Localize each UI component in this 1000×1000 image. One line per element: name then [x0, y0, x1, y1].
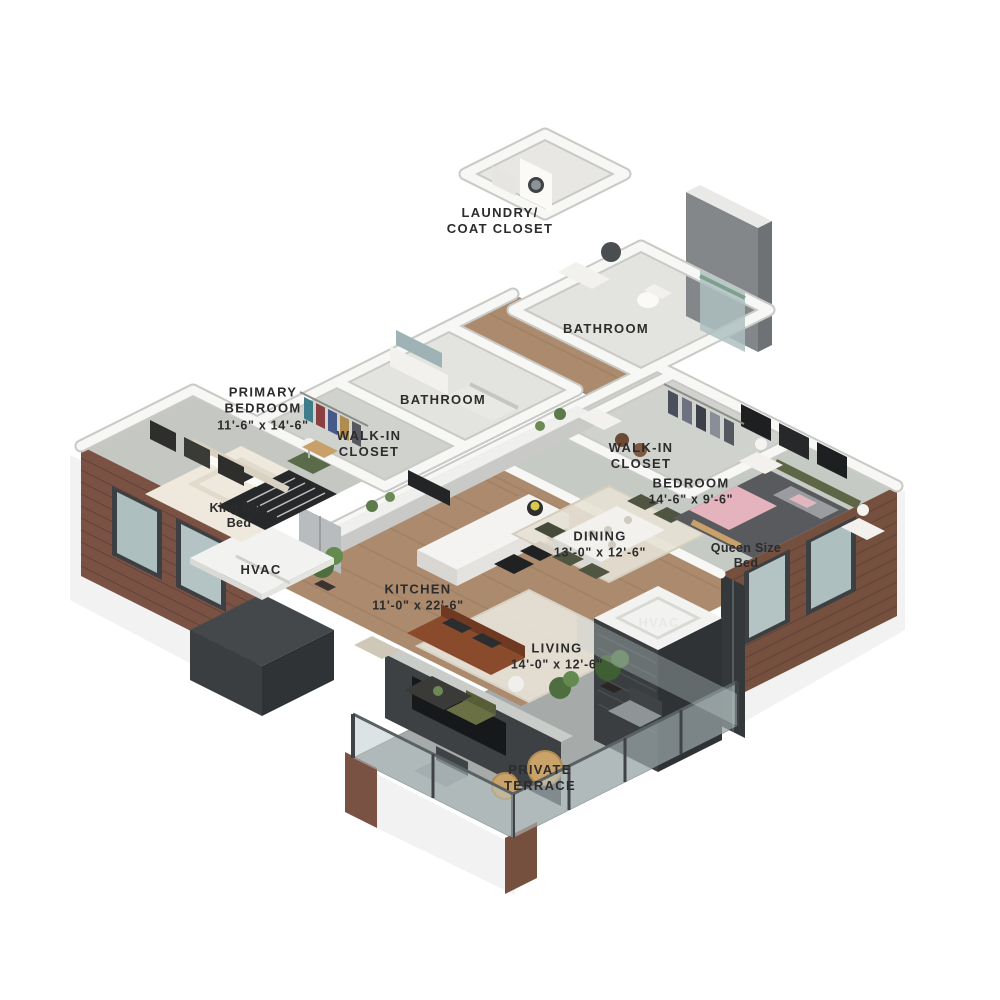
label-terrace: PRIVATE TERRACE [498, 762, 582, 795]
floorplan-illustration [0, 0, 1000, 1000]
label-queen-bed: Queen Size Bed [704, 541, 788, 571]
label-kitchen: KITCHEN 11'-0" x 22'-6" [353, 582, 483, 615]
label-bathroom-main: BATHROOM [378, 392, 508, 408]
label-living: LIVING 14'-0" x 12'-6" [492, 641, 622, 674]
label-laundry: LAUNDRY/ COAT CLOSET [444, 205, 556, 238]
label-bedroom: BEDROOM 14'-6" x 9'-6" [626, 476, 756, 509]
label-primary-bedroom: PRIMARY BEDROOM 11'-6" x 14'-6" [216, 384, 311, 433]
label-hvac-right: HVAC [622, 615, 696, 631]
label-hvac-left: HVAC [224, 562, 298, 578]
label-dining: DINING 13'-0" x 12'-6" [535, 529, 665, 562]
floorplan-page: LAUNDRY/ COAT CLOSET BATHROOM BATHROOM P… [0, 0, 1000, 1000]
label-walkin-bedroom: WALK-IN CLOSET [599, 440, 683, 473]
label-walkin-primary: WALK-IN CLOSET [327, 428, 411, 461]
label-bathroom-top: BATHROOM [541, 321, 671, 337]
label-king-bed: King Size Bed [202, 501, 276, 531]
